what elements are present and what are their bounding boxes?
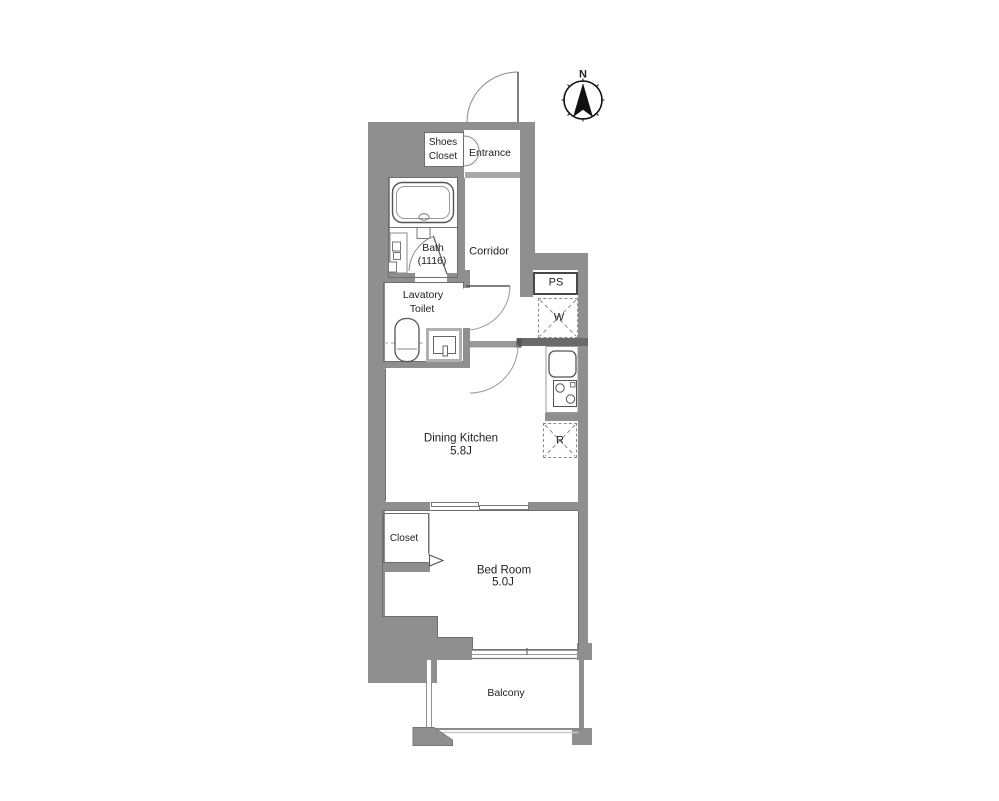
kitchen-counter	[546, 347, 578, 413]
gas-stove	[554, 381, 577, 407]
balcony-label: Balcony	[487, 688, 524, 699]
entrance-label: Entrance	[469, 148, 511, 159]
lavatory-label-2: Toilet	[410, 304, 435, 315]
closet-label: Closet	[390, 534, 418, 544]
toilet	[384, 319, 427, 362]
washer-label: W	[554, 313, 564, 324]
bath-label-2: (1116)	[418, 256, 447, 267]
bedroom-outline	[383, 511, 579, 650]
plan-linework	[0, 0, 999, 801]
closet-door	[429, 513, 443, 566]
bath-label-1: Bath	[422, 243, 444, 254]
dining-kitchen-label-1: Dining Kitchen	[424, 433, 498, 445]
vanity-sink	[428, 330, 461, 361]
north-label: N	[579, 70, 587, 81]
pipe-space-label: PS	[549, 278, 564, 289]
shower-panel	[389, 233, 408, 273]
entrance-door	[467, 72, 518, 122]
north-compass-icon	[562, 79, 605, 122]
dining-kitchen-door	[470, 339, 522, 394]
dining-kitchen-label-2: 5.8J	[450, 446, 472, 458]
window	[472, 648, 577, 659]
refrigerator-label: R	[556, 436, 564, 447]
floor-plan: N Shoes Closet Entrance Bath (1116) Corr…	[0, 0, 999, 801]
corridor-label: Corridor	[469, 247, 509, 258]
bathtub	[389, 183, 457, 239]
bedroom-label-1: Bed Room	[477, 565, 531, 577]
kitchen-sink	[549, 351, 576, 377]
shoes-closet-label-2: Closet	[429, 152, 457, 162]
shoes-closet-label-1: Shoes	[429, 138, 457, 148]
balcony-rail	[426, 729, 585, 733]
lavatory-door	[466, 286, 510, 330]
lavatory-label-1: Lavatory	[403, 290, 443, 301]
balcony-corner-block-left	[413, 728, 453, 746]
bedroom-label-2: 5.0J	[492, 577, 514, 589]
sliding-door	[432, 503, 529, 510]
